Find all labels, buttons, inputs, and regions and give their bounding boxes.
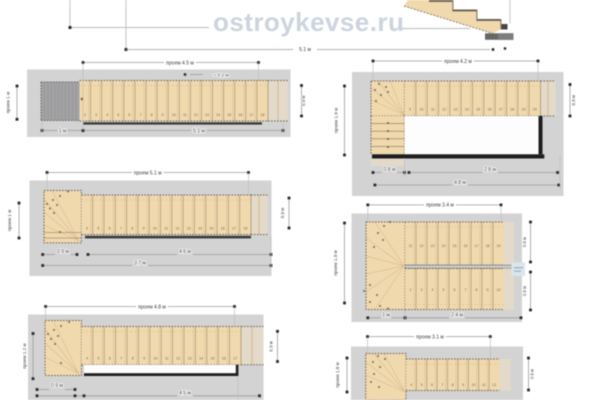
svg-text:14: 14 (199, 357, 203, 361)
svg-text:0.9 м: 0.9 м (51, 383, 63, 389)
svg-text:проем 5.1 м: проем 5.1 м (134, 170, 162, 176)
svg-text:16: 16 (238, 113, 242, 117)
svg-text:11: 11 (164, 227, 168, 231)
svg-text:3: 3 (421, 288, 423, 292)
svg-text:4: 4 (432, 288, 434, 292)
svg-text:13: 13 (431, 244, 435, 248)
svg-text:проем 4.8 м: проем 4.8 м (138, 304, 166, 310)
svg-text:19: 19 (497, 244, 501, 248)
svg-text:15: 15 (209, 227, 213, 231)
svg-text:11: 11 (165, 357, 169, 361)
svg-text:12: 12 (420, 244, 424, 248)
svg-text:3.7 м: 3.7 м (134, 260, 146, 266)
svg-text:10: 10 (153, 227, 157, 231)
svg-text:17: 17 (499, 108, 503, 112)
svg-text:проем 1.2 м: проем 1.2 м (22, 343, 27, 368)
svg-text:14: 14 (216, 113, 220, 117)
svg-text:16: 16 (222, 357, 226, 361)
svg-text:15: 15 (211, 357, 215, 361)
svg-text:13: 13 (188, 357, 192, 361)
svg-text:10: 10 (420, 108, 424, 112)
svg-text:проем 4.5 м: проем 4.5 м (166, 60, 194, 66)
svg-text:10: 10 (172, 113, 176, 117)
svg-text:проем 1.8 м: проем 1.8 м (335, 362, 340, 387)
svg-text:12: 12 (194, 113, 198, 117)
svg-text:10: 10 (154, 357, 158, 361)
svg-text:12: 12 (442, 108, 446, 112)
svg-text:4: 4 (86, 357, 88, 361)
svg-text:18: 18 (260, 113, 264, 117)
svg-text:13: 13 (187, 227, 191, 231)
svg-text:14: 14 (465, 108, 469, 112)
svg-text:5: 5 (443, 288, 445, 292)
svg-text:0.9 м: 0.9 м (57, 249, 69, 255)
svg-text:0.9 м: 0.9 м (301, 96, 306, 106)
svg-text:14: 14 (442, 244, 446, 248)
svg-text:10: 10 (472, 383, 476, 387)
svg-text:12: 12 (492, 383, 496, 387)
svg-text:2: 2 (410, 288, 412, 292)
svg-text:7: 7 (120, 357, 122, 361)
svg-text:4: 4 (86, 227, 88, 231)
svg-text:15: 15 (227, 113, 231, 117)
svg-text:9: 9 (409, 108, 411, 112)
svg-text:8: 8 (476, 288, 478, 292)
svg-text:5: 5 (117, 113, 119, 117)
svg-text:4: 4 (106, 113, 108, 117)
svg-text:6: 6 (454, 288, 456, 292)
svg-text:8: 8 (131, 227, 133, 231)
svg-text:0.9 м: 0.9 м (571, 95, 576, 105)
svg-text:9: 9 (162, 113, 164, 117)
svg-text:9: 9 (143, 357, 145, 361)
svg-text:9: 9 (143, 227, 145, 231)
svg-text:14: 14 (198, 227, 202, 231)
svg-text:18: 18 (486, 244, 490, 248)
svg-text:проем 1.9 м: проем 1.9 м (334, 108, 339, 133)
svg-text:19: 19 (522, 108, 526, 112)
svg-text:11: 11 (409, 244, 413, 248)
svg-text:10: 10 (497, 288, 501, 292)
svg-text:17: 17 (249, 113, 253, 117)
svg-text:2: 2 (84, 113, 86, 117)
svg-text:7: 7 (441, 383, 443, 387)
svg-text:1 м: 1 м (59, 128, 67, 134)
svg-text:9: 9 (487, 288, 489, 292)
svg-text:проем 4.2 м: проем 4.2 м (444, 59, 472, 65)
svg-text:7: 7 (465, 288, 467, 292)
svg-text:16: 16 (488, 108, 492, 112)
svg-text:15: 15 (476, 108, 480, 112)
svg-text:ostroykevse.ru: ostroykevse.ru (213, 7, 404, 37)
svg-text:12: 12 (176, 227, 180, 231)
svg-text:0.9 м: 0.9 м (522, 237, 527, 247)
svg-text:0.8 м: 0.8 м (384, 167, 396, 173)
svg-text:13: 13 (205, 113, 209, 117)
svg-text:16: 16 (464, 244, 468, 248)
svg-text:0.9 м: 0.9 м (522, 286, 527, 296)
svg-text:18: 18 (510, 108, 514, 112)
svg-text:1 м: 1 м (382, 313, 390, 319)
svg-text:7: 7 (139, 113, 141, 117)
svg-text:проем 1 м: проем 1 м (7, 210, 12, 232)
svg-text:проем 3.4 м: проем 3.4 м (426, 203, 454, 209)
svg-text:5.1 м: 5.1 м (299, 47, 311, 53)
svg-text:12: 12 (176, 357, 180, 361)
svg-text:4.5 м: 4.5 м (179, 391, 191, 397)
svg-text:6: 6 (128, 113, 130, 117)
svg-text:2.8 м: 2.8 м (484, 167, 496, 173)
svg-text:5: 5 (97, 227, 99, 231)
svg-text:11: 11 (431, 108, 435, 112)
svg-text:16: 16 (221, 227, 225, 231)
svg-text:0.9 м: 0.9 м (280, 208, 285, 218)
svg-text:18: 18 (243, 227, 247, 231)
svg-text:11: 11 (183, 113, 187, 117)
svg-text:0.9 м: 0.9 м (530, 369, 535, 379)
svg-text:7: 7 (120, 227, 122, 231)
svg-text:5: 5 (98, 357, 100, 361)
svg-text:3: 3 (95, 113, 97, 117)
svg-text:≈ 0.2 м: ≈ 0.2 м (213, 73, 228, 79)
svg-text:проем 3.1 м: проем 3.1 м (416, 334, 444, 340)
svg-text:проем 1.9 м: проем 1.9 м (333, 250, 338, 275)
svg-text:8: 8 (132, 357, 134, 361)
svg-text:5.1 м: 5.1 м (193, 128, 205, 134)
svg-text:11: 11 (482, 383, 486, 387)
svg-text:15: 15 (453, 244, 457, 248)
svg-text:4: 4 (410, 383, 412, 387)
svg-text:6: 6 (109, 227, 111, 231)
svg-text:8: 8 (151, 113, 153, 117)
svg-text:проем 1 м: проем 1 м (6, 92, 11, 114)
svg-text:4.8 м: 4.8 м (454, 180, 466, 186)
svg-text:17: 17 (232, 227, 236, 231)
svg-text:6: 6 (431, 383, 433, 387)
svg-text:2.4 м: 2.4 м (451, 313, 463, 319)
svg-text:9: 9 (462, 383, 464, 387)
svg-text:8: 8 (452, 383, 454, 387)
svg-text:4.6 м: 4.6 м (179, 249, 191, 255)
svg-text:17: 17 (475, 244, 479, 248)
svg-text:0.9 м: 0.9 м (269, 341, 274, 351)
svg-text:17: 17 (233, 357, 237, 361)
svg-text:5: 5 (421, 383, 423, 387)
svg-text:13: 13 (454, 108, 458, 112)
svg-text:20: 20 (533, 108, 537, 112)
svg-text:6: 6 (109, 357, 111, 361)
